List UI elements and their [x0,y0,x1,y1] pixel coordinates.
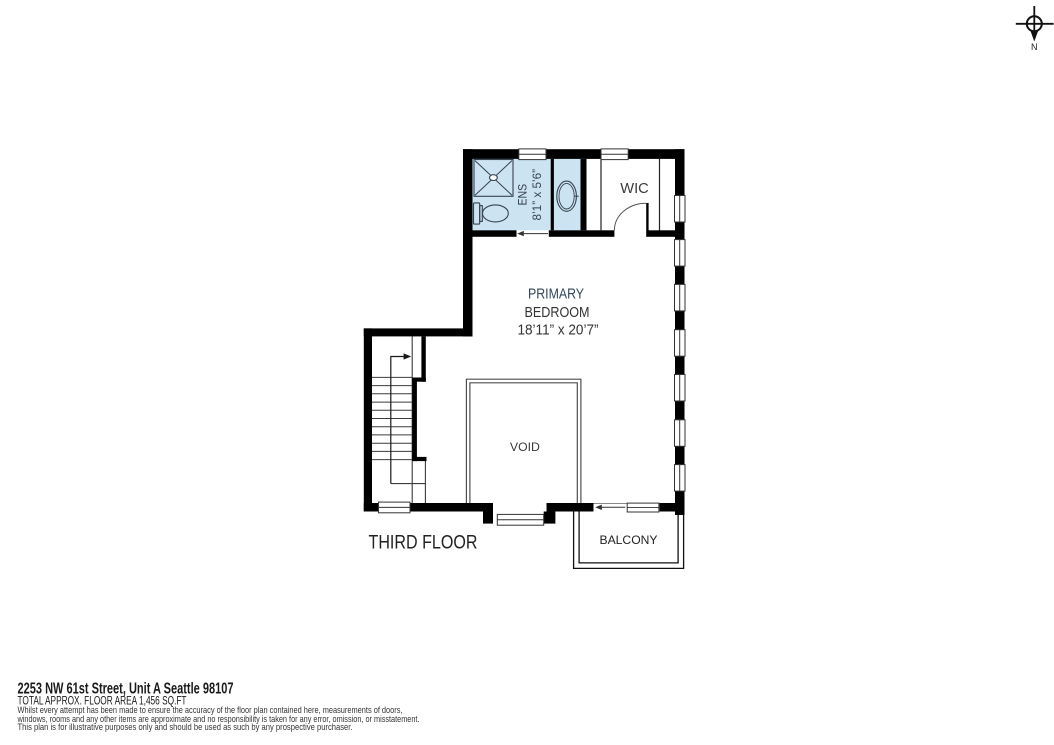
svg-text:BALCONY: BALCONY [600,533,658,547]
svg-text:THIRD FLOOR: THIRD FLOOR [369,533,478,554]
svg-text:BEDROOM: BEDROOM [525,305,590,321]
svg-text:18’11” x 20’7”: 18’11” x 20’7” [518,322,599,338]
svg-text:N: N [1031,42,1038,52]
svg-text:VOID: VOID [510,440,540,454]
svg-text:8’1” x 5’6”: 8’1” x 5’6” [530,169,544,221]
svg-text:WIC: WIC [620,181,649,197]
svg-text:ENS: ENS [516,184,530,206]
svg-text:This plan is for illustrative: This plan is for illustrative purposes o… [18,722,353,732]
svg-text:PRIMARY: PRIMARY [528,286,584,302]
